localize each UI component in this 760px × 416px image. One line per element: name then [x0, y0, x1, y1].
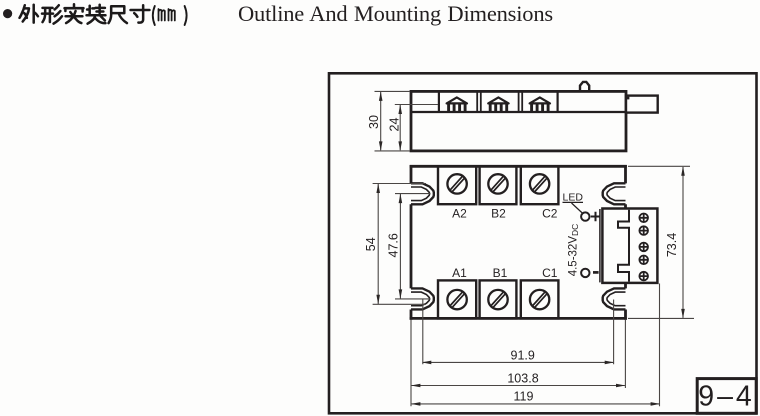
svg-text:47.6: 47.6	[386, 233, 400, 257]
svg-text:4.5-32VDC: 4.5-32VDC	[568, 224, 581, 277]
svg-text:A2: A2	[452, 206, 467, 220]
svg-text:30: 30	[367, 115, 381, 129]
svg-text:Outline And Mounting Dimension: Outline And Mounting Dimensions	[238, 1, 553, 26]
svg-text:73.4: 73.4	[665, 233, 679, 257]
svg-text:24: 24	[387, 118, 401, 132]
svg-text:C1: C1	[542, 266, 558, 280]
svg-text:A1: A1	[452, 266, 467, 280]
svg-text:LED: LED	[563, 192, 584, 204]
svg-text:B2: B2	[491, 206, 506, 220]
svg-text:91.9: 91.9	[511, 348, 535, 362]
svg-text:103.8: 103.8	[507, 371, 538, 385]
svg-text:119: 119	[514, 390, 534, 404]
svg-text:C2: C2	[542, 206, 558, 220]
svg-text:54: 54	[364, 237, 378, 251]
svg-text:B1: B1	[493, 266, 508, 280]
svg-text:9–4: 9–4	[698, 381, 755, 413]
